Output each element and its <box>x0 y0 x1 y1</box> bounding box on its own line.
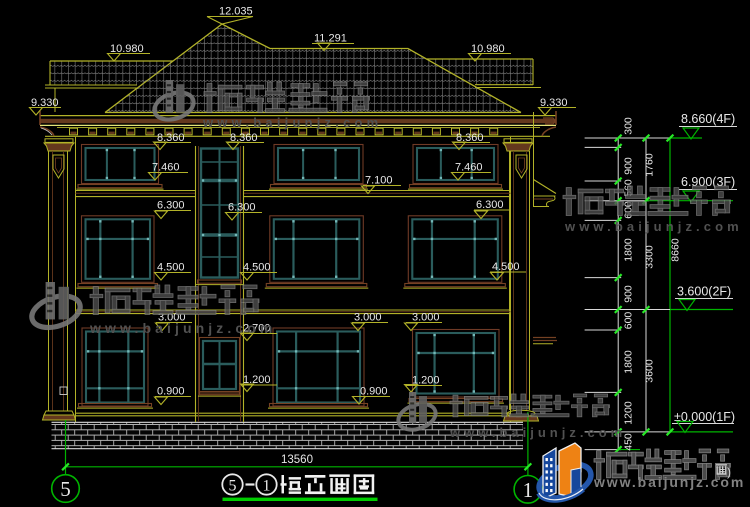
svg-text:5: 5 <box>60 477 71 501</box>
svg-text:www.baijunjz.com: www.baijunjz.com <box>202 115 382 130</box>
svg-text:1: 1 <box>263 478 271 495</box>
svg-text:4.500: 4.500 <box>243 262 271 274</box>
svg-text:1: 1 <box>523 478 534 502</box>
svg-text:7.460: 7.460 <box>152 162 180 174</box>
svg-text:www.baijunjz.com: www.baijunjz.com <box>593 474 745 490</box>
svg-text:5: 5 <box>229 478 237 495</box>
svg-text:1760: 1760 <box>644 153 656 177</box>
svg-text:6.300: 6.300 <box>476 199 504 211</box>
svg-text:3600: 3600 <box>644 359 656 383</box>
svg-text:www.baijunjz.com: www.baijunjz.com <box>449 425 626 440</box>
svg-text:3.000: 3.000 <box>354 312 382 324</box>
svg-text:www.baijunjz.com: www.baijunjz.com <box>89 320 276 336</box>
svg-text:4.500: 4.500 <box>157 262 185 274</box>
svg-text:8.660(4F): 8.660(4F) <box>681 112 735 126</box>
svg-text:12.035: 12.035 <box>219 6 253 18</box>
svg-text:7.100: 7.100 <box>365 175 393 187</box>
svg-text:13560: 13560 <box>281 454 313 466</box>
svg-text:1800: 1800 <box>623 238 635 262</box>
svg-text:600: 600 <box>623 312 635 330</box>
svg-text:www.baijunjz.com: www.baijunjz.com <box>564 219 743 234</box>
svg-text:900: 900 <box>623 285 635 303</box>
svg-text:900: 900 <box>623 157 635 175</box>
svg-text:3.000: 3.000 <box>412 312 440 324</box>
svg-text:3.600(2F): 3.600(2F) <box>677 285 731 299</box>
svg-text:0.900: 0.900 <box>360 386 388 398</box>
svg-text:4.500: 4.500 <box>492 261 520 273</box>
svg-text:3300: 3300 <box>644 245 656 269</box>
svg-text:6.300: 6.300 <box>157 200 185 212</box>
svg-text:6.300: 6.300 <box>228 202 256 214</box>
svg-text:8660: 8660 <box>670 238 682 262</box>
svg-text:0.900: 0.900 <box>157 386 185 398</box>
svg-text:): ) <box>727 465 731 479</box>
svg-text:7.460: 7.460 <box>455 162 483 174</box>
svg-text:1200: 1200 <box>623 401 635 425</box>
svg-text:300: 300 <box>623 117 635 135</box>
svg-text:1800: 1800 <box>623 350 635 374</box>
